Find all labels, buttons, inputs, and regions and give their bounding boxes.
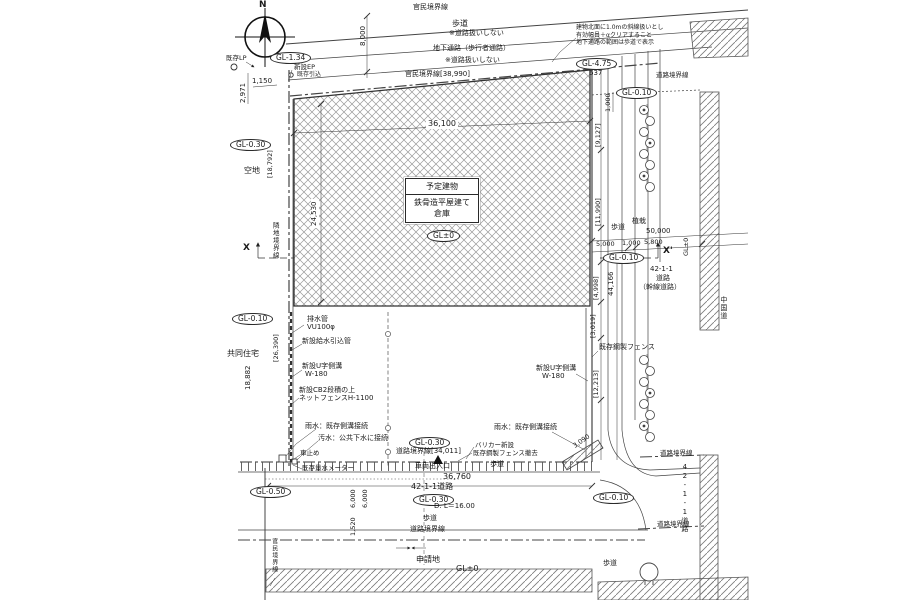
rainwater-label-west: 雨水：既存側溝接続 (305, 423, 368, 431)
dim-50000: 50,000 (646, 228, 671, 236)
level-glpm0-building: GL±0 (427, 230, 460, 242)
level-gl-475: GL-4.75 (576, 58, 617, 70)
net-fence-label: ネットフェンスH-1100 (299, 395, 373, 403)
note-line-2: 有効幅員＋αクリアすること (576, 32, 663, 40)
dim-4998: [4,998] (593, 276, 600, 300)
gutter-width-east: W-180 (542, 373, 565, 381)
sidewalk-label-southeast: 歩道 (603, 560, 617, 568)
underpass-label: 地下通路（歩行者通路） (433, 45, 510, 53)
boundary-label-kanmin-top: 官民境界線 (413, 4, 448, 12)
sidewalk-note-top: ※道路扱いしない (449, 30, 504, 38)
sidewalk-label-east: 歩道 (611, 224, 625, 232)
boundary-label-road-34011: 道路境界線[34,011] (396, 448, 461, 456)
dim-1000: 1,000 (622, 240, 641, 247)
dim-8000: 8,000 (360, 26, 368, 46)
underpass-note: ※道路扱いしない (445, 57, 500, 65)
dim-24530: 24,530 (311, 200, 319, 229)
existing-lp-label: 既存LP (226, 55, 247, 62)
section-mark-xp: X' (663, 246, 673, 256)
vehicle-entrance-label: 車両出入口 (415, 463, 450, 471)
note-line-1: 建物北面に1.0mの斜線扱いとし (576, 24, 663, 32)
datum-level-label: D. L＝16.00 (434, 503, 475, 511)
boundary-label-road-south: 道路境界線 (410, 526, 445, 534)
level-gl-010-east: GL-0.10 (603, 252, 644, 264)
sewage-label: 汚水：公共下水に接続 (318, 435, 388, 443)
dim-3019: [3,019] (590, 314, 597, 338)
dim-18882: 18,882 (245, 366, 253, 391)
boundary-label-road-east1: 道路境界線 (660, 450, 693, 457)
building-use: 倉庫 (407, 208, 477, 219)
dim-44166: 44,166 (608, 272, 616, 297)
level-gl-050: GL-0.50 (250, 486, 291, 498)
building-setback-note: 建物北面に1.0mの斜線扱いとし 有効幅員＋αクリアすること 地下通路の範囲は歩… (576, 24, 663, 47)
dim-2971: 2,971 (240, 83, 248, 103)
dim-5000: 5,000 (596, 241, 615, 248)
road-42-line3: （幹線道路） (639, 284, 681, 292)
road-42-line1: 42-1-1 (650, 266, 673, 274)
dim-11990: [11,990] (595, 198, 602, 226)
vacant-lot-label: 空地 (244, 167, 260, 176)
dim-26390: [26,390] (273, 334, 280, 362)
dim-637: 637 (589, 70, 602, 78)
road-42-east-vertical-label: 42-1-1道路 (680, 463, 688, 533)
note-line-3: 地下通路の範囲は歩道で表示 (576, 39, 663, 47)
boundary-label-rinchi: 隣地境界線 (271, 222, 278, 260)
dim-1000-topright: 1,000 (605, 93, 612, 112)
dim-1150: 1,150 (252, 78, 272, 86)
building-name: 予定建物 (406, 179, 478, 195)
drain-pipe-size: VU100φ (307, 324, 335, 332)
wheel-stop-label: 車止め (300, 450, 320, 457)
dim-9127: [9,127] (595, 123, 602, 147)
north-letter: N (259, 0, 267, 10)
sidewalk-label-south2: 歩道 (423, 515, 437, 523)
level-gl-010-topright: GL-0.10 (616, 87, 657, 99)
dim-12213: [12,213] (593, 370, 600, 398)
sidewalk-label-top: 歩道 (452, 20, 468, 29)
application-site-label: 申請地 (416, 556, 440, 565)
rainwater-label-east: 雨水：既存側溝接続 (494, 424, 557, 432)
section-mark-x: X (243, 243, 250, 253)
dim-18792: [18,792] (267, 150, 274, 178)
chugoku-road-label: 中国道 (719, 296, 727, 320)
water-meter-label: 既存量水メーター (302, 465, 354, 472)
dim-36100: 36,100 (426, 120, 458, 129)
building-structure: 鉄骨造平屋建て (407, 197, 477, 208)
level-gl-134: GL-1.34 (270, 52, 311, 64)
building-label-box: 予定建物 鉄骨造平屋建て 倉庫 (405, 178, 479, 223)
boundary-label-road-topright: 道路境界線 (656, 72, 689, 79)
water-supply-label: 新設給水引込管 (302, 338, 351, 346)
dim-6000-b: 6,000 (362, 489, 369, 508)
level-glpm0-east-road: GL±0 (683, 238, 690, 256)
planting-label: 植栽 (632, 218, 646, 226)
neighbor-apartment-label: 共同住宅 (227, 350, 259, 359)
existing-service-label: 既存引込 (297, 72, 321, 79)
level-gl-030-west: GL-0.30 (230, 139, 271, 151)
dim-1520: 1,520 (350, 517, 357, 536)
level-glpm0-site: GL±0 (456, 565, 478, 574)
level-gl-010-southeast: GL-0.10 (593, 492, 634, 504)
dim-5800: 5,800 (644, 239, 663, 246)
sidewalk-label-south1: 歩道 (490, 461, 504, 469)
existing-fence-label: 既存鋼製フェンス (599, 344, 655, 352)
road-42-line2: 道路 (656, 275, 670, 283)
site-plan-drawing: N 官民境界線 歩道 ※道路扱いしない 地下通路（歩行者通路） ※道路扱いしない… (0, 0, 900, 600)
boundary-label-kanmin-38990: 官民境界線[38,990] (405, 71, 470, 79)
boundary-label-kanmin-bottom: 官民境界線 (270, 538, 277, 573)
level-gl-010-west: GL-0.10 (232, 313, 273, 325)
dim-36760: 36,760 (443, 473, 471, 482)
road-42-south-label: 42-1-1道路 (411, 483, 453, 492)
dim-6000-a: 6,000 (350, 489, 357, 508)
gutter-width-west: W-180 (305, 371, 328, 379)
fence-removal-label: 既存鋼製フェンス撤去 (473, 450, 538, 457)
